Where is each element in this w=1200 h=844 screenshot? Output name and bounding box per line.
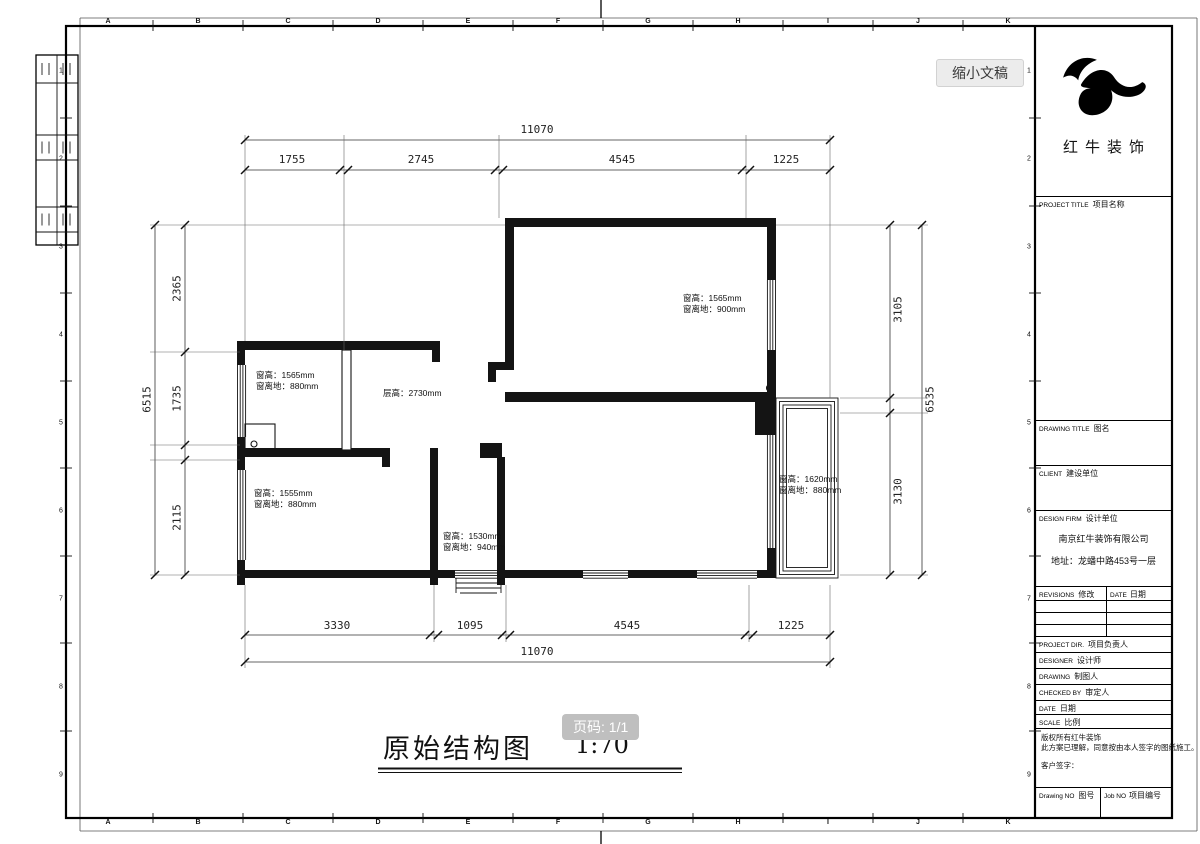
border-number-left: 4 — [59, 332, 63, 339]
dim-bottom-overall: 11070 — [507, 645, 567, 658]
tb-drawing-no: Drawing NO 图号 Job NO 项目编号 — [1036, 787, 1171, 818]
window-annotation: 窗高：1620mm窗离地：880mm — [779, 474, 841, 495]
border-letter-bottom: D — [375, 819, 380, 826]
tb-job-no: Job NO 项目编号 — [1100, 788, 1171, 818]
tb-revision-row — [1036, 612, 1171, 624]
dim-left-seg-2: 1735 — [171, 369, 184, 429]
dim-right-overall: 6535 — [924, 370, 937, 430]
tb-project-dir: PROJECT DIR. 项目负责人 — [1036, 636, 1171, 652]
border-letter-top: B — [195, 18, 200, 25]
tb-design-firm: DESIGN FIRM 设计单位 — [1036, 510, 1171, 586]
border-number-right: 6 — [1027, 508, 1031, 515]
tb-drawing-person: DRAWING 制图人 — [1036, 668, 1171, 684]
border-letter-bottom: E — [466, 819, 471, 826]
border-number-left: 1 — [59, 68, 63, 75]
border-number-left: 2 — [59, 156, 63, 163]
border-number-right: 7 — [1027, 596, 1031, 603]
border-letter-top: J — [916, 18, 920, 25]
tb-client: CLIENT 建设单位 — [1036, 465, 1171, 510]
dim-bottom-seg-4: 1225 — [761, 619, 821, 632]
border-letter-bottom: A — [105, 819, 110, 826]
border-number-right: 5 — [1027, 420, 1031, 427]
border-number-right: 9 — [1027, 772, 1031, 779]
border-number-left: 5 — [59, 420, 63, 427]
walls — [237, 218, 776, 585]
page-number-badge: 页码: 1/1 — [562, 714, 639, 740]
dim-top-seg-2: 2745 — [391, 153, 451, 166]
window-annotation: 窗高：1530mm窗离地：940mm — [443, 531, 505, 552]
border-letter-top: F — [556, 18, 560, 25]
border-number-right: 2 — [1027, 156, 1031, 163]
tb-revisions-header: REVISIONS 修改 DATE 日期 — [1036, 586, 1171, 600]
note-line-3: 客户签字： — [1041, 760, 1079, 771]
border-letter-top: D — [375, 18, 380, 25]
dim-left-seg-1: 2365 — [171, 259, 184, 319]
border-number-left: 3 — [59, 244, 63, 251]
design-firm-name: 南京红牛装饰有限公司 — [1036, 532, 1171, 545]
revision-strip — [36, 55, 78, 245]
design-firm-address: 地址：龙蟠中路453号一层 — [1036, 554, 1171, 567]
window-annotation: 窗高：1565mm窗离地：900mm — [683, 293, 745, 314]
company-logo-icon — [1049, 51, 1159, 131]
dim-right-seg-2: 3130 — [892, 462, 905, 522]
border-number-left: 7 — [59, 596, 63, 603]
note-line-2: 此方案已理解，同意按由本人签字的图纸施工。 — [1041, 742, 1199, 753]
border-letter-bottom: J — [916, 819, 920, 826]
tb-designer: DESIGNER 设计师 — [1036, 652, 1171, 668]
border-letter-bottom: C — [285, 819, 290, 826]
border-number-left: 9 — [59, 772, 63, 779]
drawing-sheet: 11070 1755 2745 4545 1225 3330 1095 4545… — [0, 0, 1200, 844]
border-number-right: 8 — [1027, 684, 1031, 691]
title-block: 红牛装饰 PROJECT TITLE 项目名称 DRAWING TITLE 图名… — [1036, 26, 1171, 818]
window-annotation: 窗高：1555mm窗离地：880mm — [254, 488, 316, 509]
border-letter-top: G — [645, 18, 650, 25]
window-annotation: 窗高：1565mm窗离地：880mm — [256, 370, 318, 391]
border-letter-top: I — [827, 18, 829, 25]
border-letter-bottom: H — [735, 819, 740, 826]
tb-scale: SCALE 比例 — [1036, 714, 1171, 728]
tb-revision-date-col: DATE 日期 — [1106, 587, 1171, 600]
dim-left-seg-3: 2115 — [171, 488, 184, 548]
border-letter-bottom: G — [645, 819, 650, 826]
dim-bottom-seg-3: 4545 — [597, 619, 657, 632]
border-letter-bottom: B — [195, 819, 200, 826]
border-letter-top: E — [466, 18, 471, 25]
border-letter-top: K — [1005, 18, 1010, 25]
tb-date: DATE 日期 — [1036, 700, 1171, 714]
tb-checked-by: CHECKED BY 审定人 — [1036, 684, 1171, 700]
drawing-title: 原始结构图 — [383, 727, 533, 766]
shrink-document-button[interactable]: 缩小文稿 — [936, 59, 1024, 87]
border-letter-top: A — [105, 18, 110, 25]
dim-top-seg-1: 1755 — [262, 153, 322, 166]
border-number-left: 6 — [59, 508, 63, 515]
dim-top-seg-4: 1225 — [756, 153, 816, 166]
ceiling-height-annotation: 层高：2730mm — [383, 388, 442, 399]
dim-bottom-seg-2: 1095 — [440, 619, 500, 632]
tb-revision-row — [1036, 600, 1171, 612]
title-underline — [378, 769, 682, 773]
border-number-left: 8 — [59, 684, 63, 691]
border-number-right: 4 — [1027, 332, 1031, 339]
dim-bottom-seg-1: 3330 — [307, 619, 367, 632]
dim-top-seg-3: 4545 — [592, 153, 652, 166]
dim-left-overall: 6515 — [141, 370, 154, 430]
partition-wall — [342, 350, 351, 450]
border-ruler-ticks — [60, 20, 1041, 823]
tb-revision-row — [1036, 624, 1171, 636]
border-letter-top: H — [735, 18, 740, 25]
tb-project-title: PROJECT TITLE 项目名称 — [1036, 196, 1171, 420]
border-number-right: 1 — [1027, 68, 1031, 75]
tb-drawing-title: DRAWING TITLE 图名 — [1036, 420, 1171, 465]
dim-top-overall: 11070 — [507, 123, 567, 136]
company-name: 红牛装饰 — [1036, 136, 1171, 157]
bay-window — [456, 578, 501, 593]
dim-right-seg-1: 3105 — [892, 280, 905, 340]
border-letter-bottom: I — [827, 819, 829, 826]
border-number-right: 3 — [1027, 244, 1031, 251]
border-letter-bottom: F — [556, 819, 560, 826]
border-letter-bottom: K — [1005, 819, 1010, 826]
border-letter-top: C — [285, 18, 290, 25]
